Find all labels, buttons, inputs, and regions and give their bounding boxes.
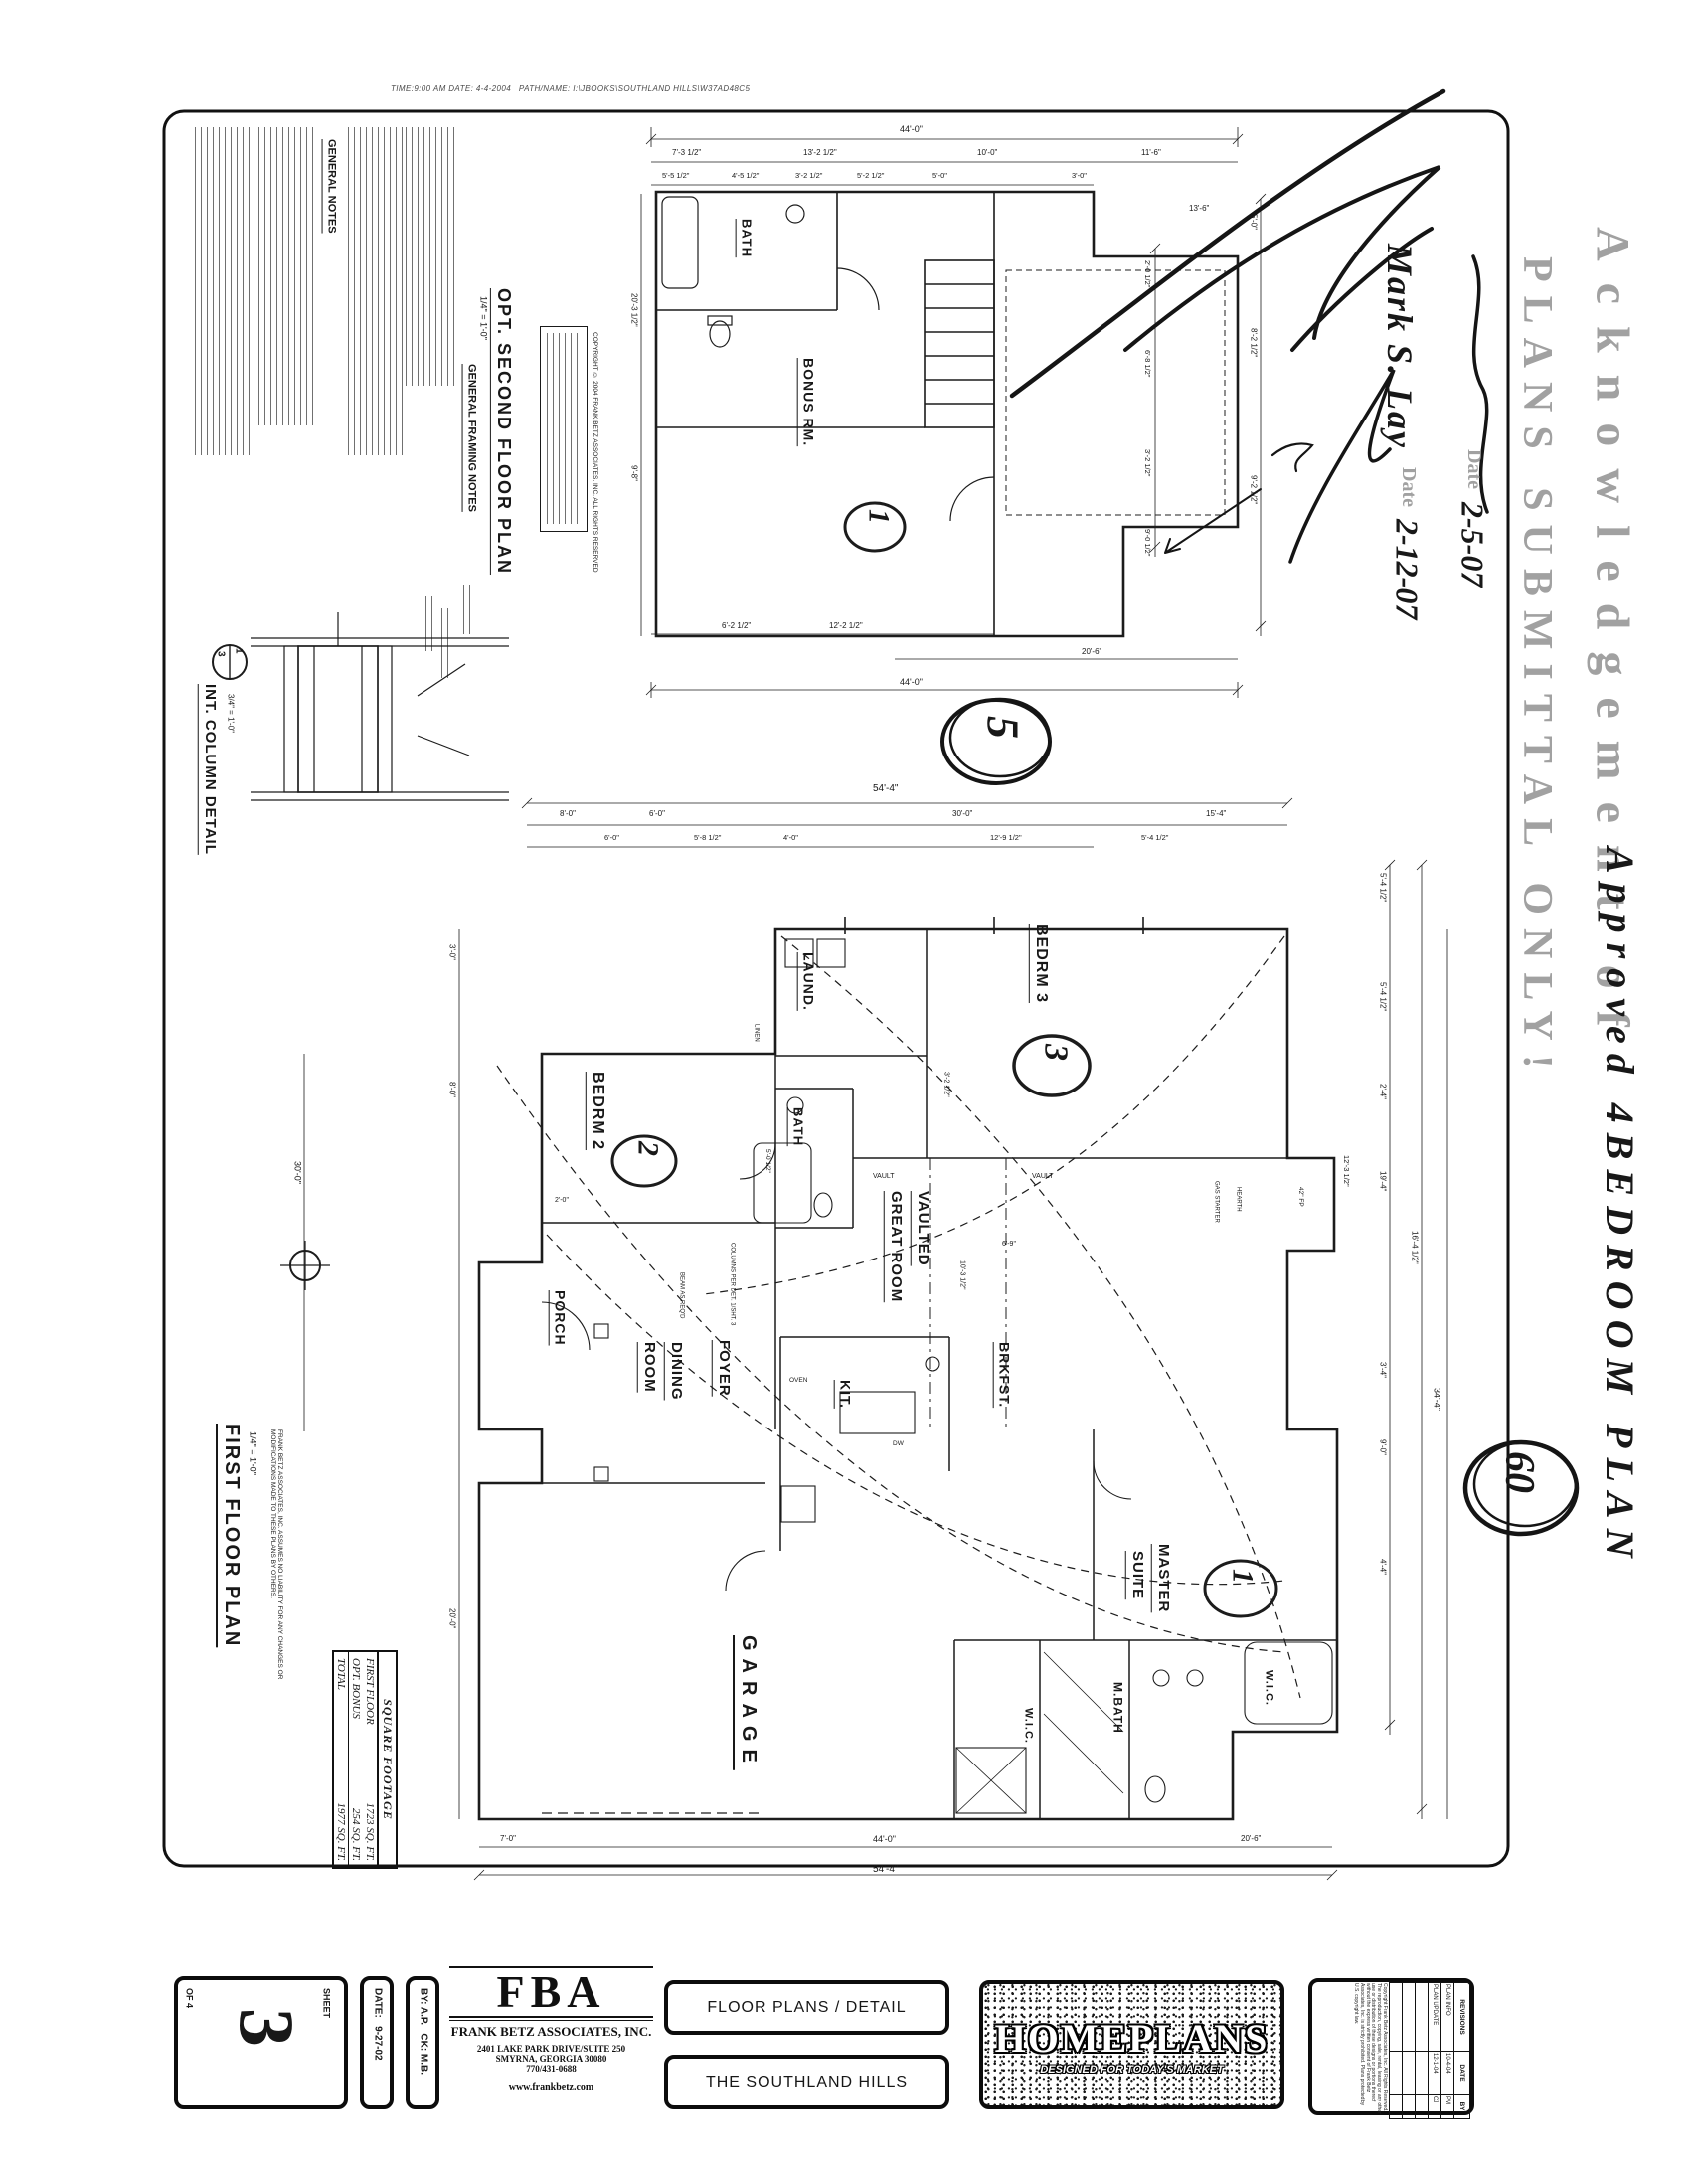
note-vault: VAULT xyxy=(873,1173,895,1180)
general-notes-text-column xyxy=(195,127,254,455)
handwritten-signature-strokes xyxy=(942,91,1577,1534)
room-foyer: FOYER xyxy=(716,1340,732,1397)
revision-entry: PLAN UPDATE xyxy=(1429,1983,1441,2052)
scanned-floor-plan-sheet: TIME:9:00 AM DATE: 4-4-2004 PATH/NAME: I… xyxy=(0,0,1694,2184)
room-great-room: GREAT ROOM xyxy=(888,1191,904,1302)
column-detail-title: INT. COLUMN DETAIL xyxy=(202,684,218,855)
column-detail-linework xyxy=(213,612,509,800)
dim: 19'-4" xyxy=(1378,1171,1386,1191)
room-dining: ROOM xyxy=(641,1342,657,1393)
dim: 30'-0" xyxy=(292,1161,301,1184)
dim: 3'-0" xyxy=(447,944,455,960)
dim: 3'-4" xyxy=(1378,1362,1386,1378)
revision-entry: PLAN INFO xyxy=(1441,1983,1454,2052)
revision-date: 10-4-04 xyxy=(1441,2052,1454,2095)
dim: 5'-0" xyxy=(932,172,947,180)
framing-notes-text-column xyxy=(406,127,457,386)
dim: 10'-0" xyxy=(977,149,997,157)
general-notes-text-column xyxy=(258,127,318,425)
signature-date-2: 2-5-07 xyxy=(1455,502,1489,587)
dim: 6'-2 1/2" xyxy=(722,622,751,630)
sqft-title: SQUARE FOOTAGE xyxy=(378,1651,397,1868)
room-breakfast: BRKFST. xyxy=(997,1342,1012,1408)
revisions-table: REVISIONS DATE BY PLAN INFO 10-4-04 PM P… xyxy=(1312,1982,1470,2115)
note: 42" FP xyxy=(1296,1187,1303,1207)
room-kitchen: KIT. xyxy=(838,1380,853,1409)
dim: 11'-6" xyxy=(1141,149,1161,157)
sqft-row-label: FIRST FLOOR xyxy=(363,1651,378,1765)
drawn-by-strip: BY: A.P. CK: M.B. xyxy=(406,1976,439,2109)
dim: 5'-4 1/2" xyxy=(1378,982,1386,1011)
dim: 15'-4" xyxy=(1206,810,1226,818)
dim: 9'-2 1/2" xyxy=(1249,475,1257,504)
sqft-row-value: 1723 SQ. FT. xyxy=(363,1765,378,1868)
framing-notes-title: GENERAL FRAMING NOTES xyxy=(465,364,477,512)
second-floor-plan-title: OPT. SECOND FLOOR PLAN xyxy=(494,288,513,575)
handwritten-60: 60 xyxy=(1497,1451,1541,1493)
second-floor-linework xyxy=(641,127,1266,698)
dim: 16'-4 1/2" xyxy=(1410,1231,1418,1264)
room-great-room: VAULTED xyxy=(915,1191,931,1266)
note: LINEN xyxy=(753,1024,759,1042)
room-wic: W.I.C. xyxy=(1263,1670,1274,1706)
sheet-of-label: OF 4 xyxy=(184,1988,193,2008)
dim: 4'-4" xyxy=(1378,1559,1386,1575)
fba-phone: 770/431-0688 xyxy=(449,2064,653,2074)
note: OVEN xyxy=(789,1378,807,1385)
dim-overall-top: 44'-0" xyxy=(900,125,923,134)
dim: 10'-3 1/2" xyxy=(958,1260,965,1290)
column-marker-symbol xyxy=(280,1241,330,1290)
handwritten-circle-5 xyxy=(942,700,1050,783)
dim: 8'-0" xyxy=(560,810,576,818)
dim: 12'-2 1/2" xyxy=(829,622,863,630)
dim: 5'-8 1/2" xyxy=(694,834,721,842)
note: DW xyxy=(893,1441,904,1448)
detail-callout-text xyxy=(441,608,448,678)
fba-company-name: FRANK BETZ ASSOCIATES, INC. xyxy=(449,2024,653,2040)
room-master: MASTER xyxy=(1155,1544,1171,1612)
room-wic: W.I.C. xyxy=(1022,1708,1034,1744)
detail-callout-text xyxy=(463,585,470,634)
dim: 44'-0" xyxy=(873,1835,896,1844)
handwritten-1-master: 1 xyxy=(1227,1569,1259,1584)
fba-address-1: 2401 LAKE PARK DRIVE/SUITE 250 xyxy=(449,2044,653,2054)
plan-name-text: THE SOUTHLAND HILLS xyxy=(706,2074,908,2092)
room-bonus: BONUS RM. xyxy=(801,358,816,446)
dim: 34'-4" xyxy=(1432,1388,1440,1411)
detail-marker-sheet: 3 xyxy=(215,651,226,657)
handwritten-2: 2 xyxy=(632,1141,664,1156)
handwritten-approved-note: Approved 4BEDROOM PLAN xyxy=(1599,847,1640,1567)
dim: 30'-0" xyxy=(952,810,972,818)
first-floor-linework xyxy=(304,798,1447,1880)
dim: 20'-3 1/2" xyxy=(629,293,637,327)
dim: 13'-2 1/2" xyxy=(803,149,837,157)
room-bedroom-2: BEDRM 2 xyxy=(589,1072,605,1150)
sheet-contents-text: FLOOR PLANS / DETAIL xyxy=(707,1999,906,2017)
homeplans-logo-text: HOMEPLANS xyxy=(995,2015,1270,2062)
dim-overall-bottom: 54'-4" xyxy=(873,1865,898,1876)
revision-date: 12-1-04 xyxy=(1429,2052,1441,2095)
dim: 6'-9" xyxy=(1002,1241,1016,1248)
dim: 5'-4 1/2" xyxy=(1378,873,1386,902)
first-floor-plan-title: FIRST FLOOR PLAN xyxy=(221,1424,242,1647)
copyright-note: COPYRIGHT © 2004 FRANK BETZ ASSOCIATES, … xyxy=(591,332,597,573)
dim: 9'-8" xyxy=(629,465,637,481)
dim: 12'-9 1/2" xyxy=(990,834,1022,842)
square-footage-table: SQUARE FOOTAGE FIRST FLOOR 1723 SQ. FT. … xyxy=(275,1650,398,1869)
detail-callout-text xyxy=(425,596,432,651)
handwritten-1-bonus: 1 xyxy=(863,509,895,524)
room-bedroom-3: BEDRM 3 xyxy=(1032,924,1049,1003)
plan-name-box: THE SOUTHLAND HILLS xyxy=(664,2055,949,2109)
revision-by: PM xyxy=(1441,2095,1454,2119)
dim: 6'-0" xyxy=(604,834,619,842)
dim: 2'-0" xyxy=(555,1197,569,1204)
dim: 7'-3 1/2" xyxy=(672,149,701,157)
date-strip-text: DATE: 9-27-02 xyxy=(372,1988,383,2061)
fba-address-2: SMYRNA, GEORGIA 30080 xyxy=(449,2054,653,2064)
revisions-copyright-text: Copyright Frank Betz Associates, Inc. Al… xyxy=(1351,1982,1390,2115)
sheet-number-box: OF 4 SHEET 3 xyxy=(174,1976,348,2109)
dim: 3'-2 1/2" xyxy=(795,172,822,180)
room-garage: GARAGE xyxy=(738,1635,759,1770)
dim: 20'-6" xyxy=(1082,648,1101,656)
dim: 3'-0" xyxy=(1072,172,1087,180)
note-vault: VAULT xyxy=(1032,1173,1054,1180)
sqft-row-label: TOTAL xyxy=(333,1651,349,1765)
dim: 2'-4" xyxy=(1378,1084,1386,1099)
room-master: SUITE xyxy=(1129,1551,1145,1599)
room-porch: PORCH xyxy=(553,1290,568,1346)
handwritten-5: 5 xyxy=(978,716,1026,739)
room-dining: DINING xyxy=(668,1342,684,1401)
dim: 12'-3 1/2" xyxy=(1342,1155,1350,1187)
dim: 5'-0" xyxy=(1249,214,1257,230)
room-bath-2nd: BATH xyxy=(740,219,754,257)
revisions-by-header: BY xyxy=(1454,2095,1470,2119)
dim: 20'-0" xyxy=(447,1608,455,1628)
dim: 6'-8 1/2" xyxy=(1143,350,1151,377)
fba-logo: FBA xyxy=(449,1968,653,2016)
dim: 7'-0" xyxy=(500,1835,516,1843)
general-notes-title: GENERAL NOTES xyxy=(325,139,337,234)
handwritten-3: 3 xyxy=(1038,1044,1074,1061)
revision-by: CJ xyxy=(1429,2095,1441,2119)
stamp-date-label-2: Date xyxy=(1463,449,1484,489)
second-floor-plan-scale: 1/4" = 1'-0" xyxy=(478,296,487,340)
dim: 5'-4 1/2" xyxy=(1141,834,1168,842)
note: HEARTH xyxy=(1235,1187,1241,1212)
dim-overall-bottom: 44'-0" xyxy=(900,678,923,687)
dim-overall-top: 54'-4" xyxy=(873,784,898,795)
fba-logo-block: FBA FRANK BETZ ASSOCIATES, INC. 2401 LAK… xyxy=(449,1966,653,2093)
dim: 20'-6" xyxy=(1241,1835,1261,1843)
room-master-bath: M.BATH xyxy=(1111,1682,1124,1734)
sqft-row-value: 254 SQ. FT. xyxy=(349,1765,364,1868)
dim: 8'-0" xyxy=(447,1082,455,1097)
stamp-plans-submittal: PLANS SUBMITTAL ONLY! xyxy=(1515,256,1559,1083)
room-bath: BATH xyxy=(791,1107,805,1146)
dim: 5'-2 1/2" xyxy=(857,172,884,180)
dim: 9'-0 1/2" xyxy=(1143,529,1151,556)
dim: 3'-2 1/2" xyxy=(1143,449,1151,476)
dim: 4'-0" xyxy=(783,834,798,842)
dim: 8'-2 1/2" xyxy=(1249,328,1257,357)
by-strip-text: BY: A.P. CK: M.B. xyxy=(418,1988,428,2075)
note: COLUMNS PER DET. 1/SHT. 3 xyxy=(729,1243,735,1325)
dim: 9'-0" xyxy=(1378,1439,1386,1455)
sheet-contents-box: FLOOR PLANS / DETAIL xyxy=(664,1980,949,2035)
dim: 5'-5 1/2" xyxy=(662,172,689,180)
sqft-row-value: 1977 SQ. FT. xyxy=(333,1765,349,1868)
signature-name: Mark S. Lay xyxy=(1380,244,1418,449)
dim: 6'-0" xyxy=(649,810,665,818)
framing-notes-text-column xyxy=(348,127,403,455)
fba-website: www.frankbetz.com xyxy=(449,2082,653,2093)
revisions-date-header: DATE xyxy=(1454,2052,1470,2095)
detail-marker-number: 1 xyxy=(233,648,244,654)
dim: 2'-0 1/2" xyxy=(1143,260,1151,287)
room-laundry: LAUND. xyxy=(801,952,816,1011)
dim: 13'-6" xyxy=(1189,205,1209,213)
note-tub: 5'-0 1/2" xyxy=(763,1149,770,1173)
homeplans-logo-block: HOMEPLANS DESIGNED FOR TODAY'S MARKET xyxy=(979,1980,1284,2109)
handwritten-arrow xyxy=(1165,489,1261,553)
homeplans-tagline: DESIGNED FOR TODAY'S MARKET xyxy=(1040,2064,1223,2076)
revisions-header: REVISIONS xyxy=(1454,1983,1470,2052)
stamp-date-label-1: Date xyxy=(1398,467,1419,507)
sheet-label: SHEET xyxy=(321,1988,330,2018)
signature-date-1: 2-12-07 xyxy=(1390,519,1424,619)
note: BEAM AS REQ'D xyxy=(678,1272,684,1319)
note: GAS STARTER xyxy=(1213,1181,1219,1223)
sqft-row-label: OPT. BONUS xyxy=(349,1651,364,1765)
plan-note-box xyxy=(540,326,588,532)
date-strip: DATE: 9-27-02 xyxy=(360,1976,394,2109)
sheet-number: 3 xyxy=(226,2008,307,2047)
dim: 4'-5 1/2" xyxy=(732,172,759,180)
dim: 3'-2 1/2" xyxy=(942,1072,949,1097)
column-detail-scale: 3/4" = 1'-0" xyxy=(226,694,234,733)
